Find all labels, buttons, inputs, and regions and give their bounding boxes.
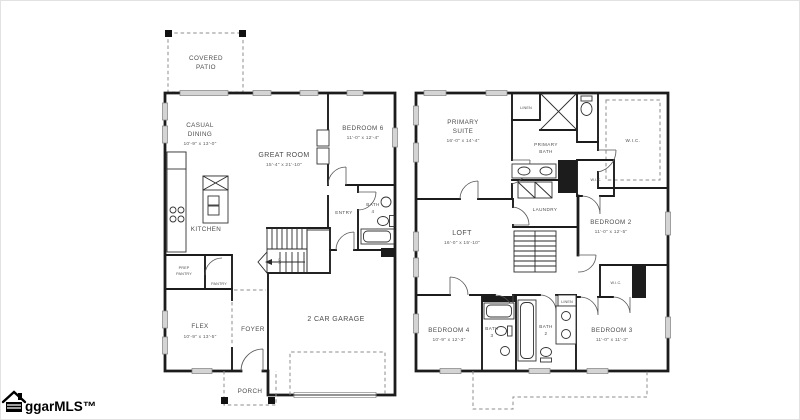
bath2-label2: 2 (545, 331, 548, 336)
primary-toilet (581, 103, 592, 116)
watermark-text: ggarMLS™ (25, 399, 96, 414)
bedroom6-dims: 11'-0" x 12'-4" (347, 135, 380, 141)
bath4-toilet (378, 217, 389, 226)
primary-suite-dims: 16'-0" x 14'-4" (446, 138, 479, 144)
covered-patio-label2: PATIO (196, 64, 216, 71)
linen-top-label: LINEN (520, 106, 532, 110)
primary-bath-label2: BATH (539, 149, 553, 154)
floor-plan-image: COVERED PATIO CASUAL DINING 10'-9" x 13'… (0, 0, 800, 420)
bedroom3-label: BEDROOM 3 (591, 327, 632, 334)
bath4-sink (381, 197, 391, 207)
prep-pantry-label2: PANTRY (176, 272, 192, 276)
wic-small-label: W.I.C. (591, 178, 602, 182)
great-room-dims: 15'-4" x 21'-10" (266, 162, 302, 168)
primary-suite-label2: SUITE (453, 128, 474, 135)
photo-frame (1, 1, 800, 420)
bath2-sink (562, 330, 571, 339)
primary-bath-label: PRIMARY (534, 142, 558, 147)
covered-patio-label: COVERED (189, 55, 223, 62)
bath3-label: BATH (485, 326, 499, 331)
bath2-toilet (541, 348, 552, 357)
loft-label: LOFT (452, 230, 472, 237)
entry-label: ENTRY (335, 210, 353, 215)
primary-suite-label: PRIMARY (447, 119, 479, 126)
primary-sink (540, 167, 552, 175)
stairs-up-label: UP (278, 258, 282, 264)
bedroom2-dims: 11'-0" x 12'-5" (595, 229, 628, 235)
kitchen-label: KITCHEN (191, 226, 221, 233)
garage-label: 2 CAR GARAGE (307, 316, 364, 323)
casual-dining-label: CASUAL (186, 122, 214, 129)
porch-label: PORCH (238, 388, 263, 395)
linen-bath2-label: LINEN (561, 300, 573, 304)
bath3-label2: 3 (491, 333, 494, 338)
wic-bedroom3-label: W.I.C. (611, 281, 622, 285)
cooktop-burner (170, 207, 176, 213)
flex-dims: 10'-9" x 13'-5" (183, 334, 216, 340)
wic-large-label: W.I.C. (626, 138, 641, 143)
bath4-label2: 4 (372, 209, 375, 214)
laundry-label: LAUNDRY (533, 207, 558, 212)
bedroom2-label: BEDROOM 2 (590, 219, 631, 226)
flex-label: FLEX (191, 323, 209, 330)
bath3-sink (501, 347, 510, 356)
casual-dining-dims: 10'-9" x 13'-0" (183, 141, 216, 147)
refrigerator (167, 152, 186, 169)
patio-door-window (180, 90, 228, 95)
loft-dims: 16'-0" x 15'-10" (444, 240, 480, 246)
bath4-label: BATH (366, 202, 380, 207)
bedroom4-label: BEDROOM 4 (428, 327, 469, 334)
cooktop-burner (170, 216, 176, 222)
prep-pantry-label: PREP (179, 266, 190, 270)
primary-sink (518, 167, 530, 175)
bedroom4-dims: 10'-9" x 12'-3" (432, 337, 465, 343)
cooktop-burner (178, 216, 184, 222)
cooktop-burner (178, 207, 184, 213)
bedroom6-label: BEDROOM 6 (342, 125, 383, 132)
casual-dining-label2: DINING (188, 131, 212, 138)
bath2-label: BATH (539, 324, 553, 329)
great-room-label: GREAT ROOM (258, 152, 309, 159)
bedroom3-dims: 11'-0" x 11'-3" (596, 337, 628, 343)
pantry-label: PANTRY (211, 282, 227, 286)
bath2-sink (562, 312, 571, 321)
foyer-label: FOYER (241, 326, 265, 333)
